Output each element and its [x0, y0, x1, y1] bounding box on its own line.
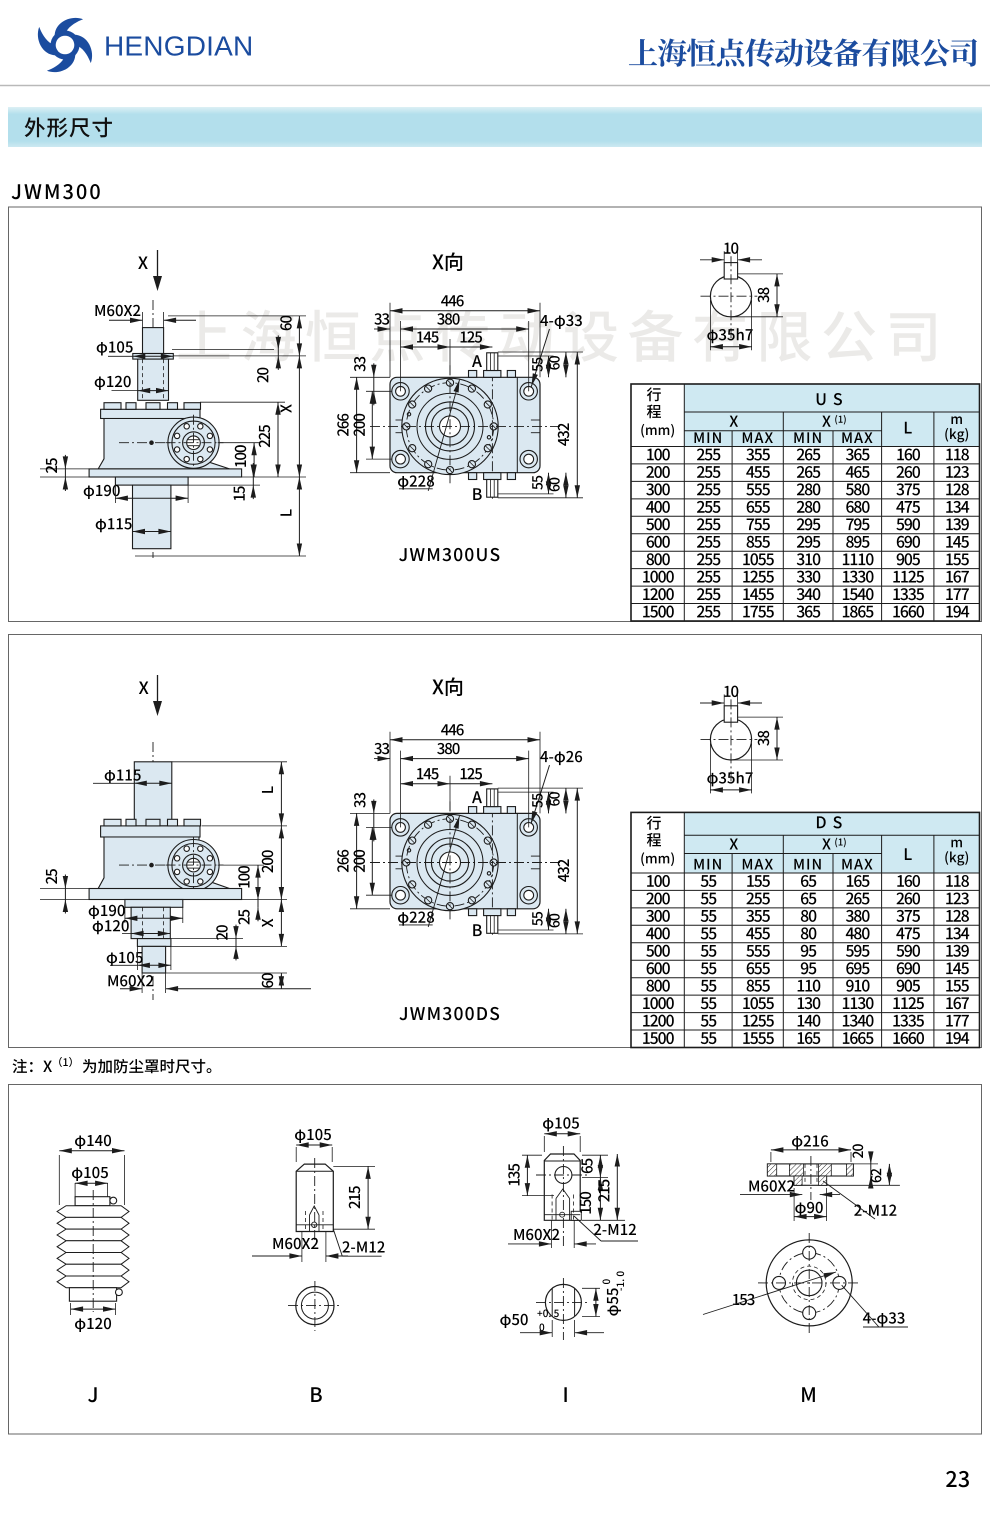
svg-text:HENGDIAN: HENGDIAN: [104, 31, 253, 62]
